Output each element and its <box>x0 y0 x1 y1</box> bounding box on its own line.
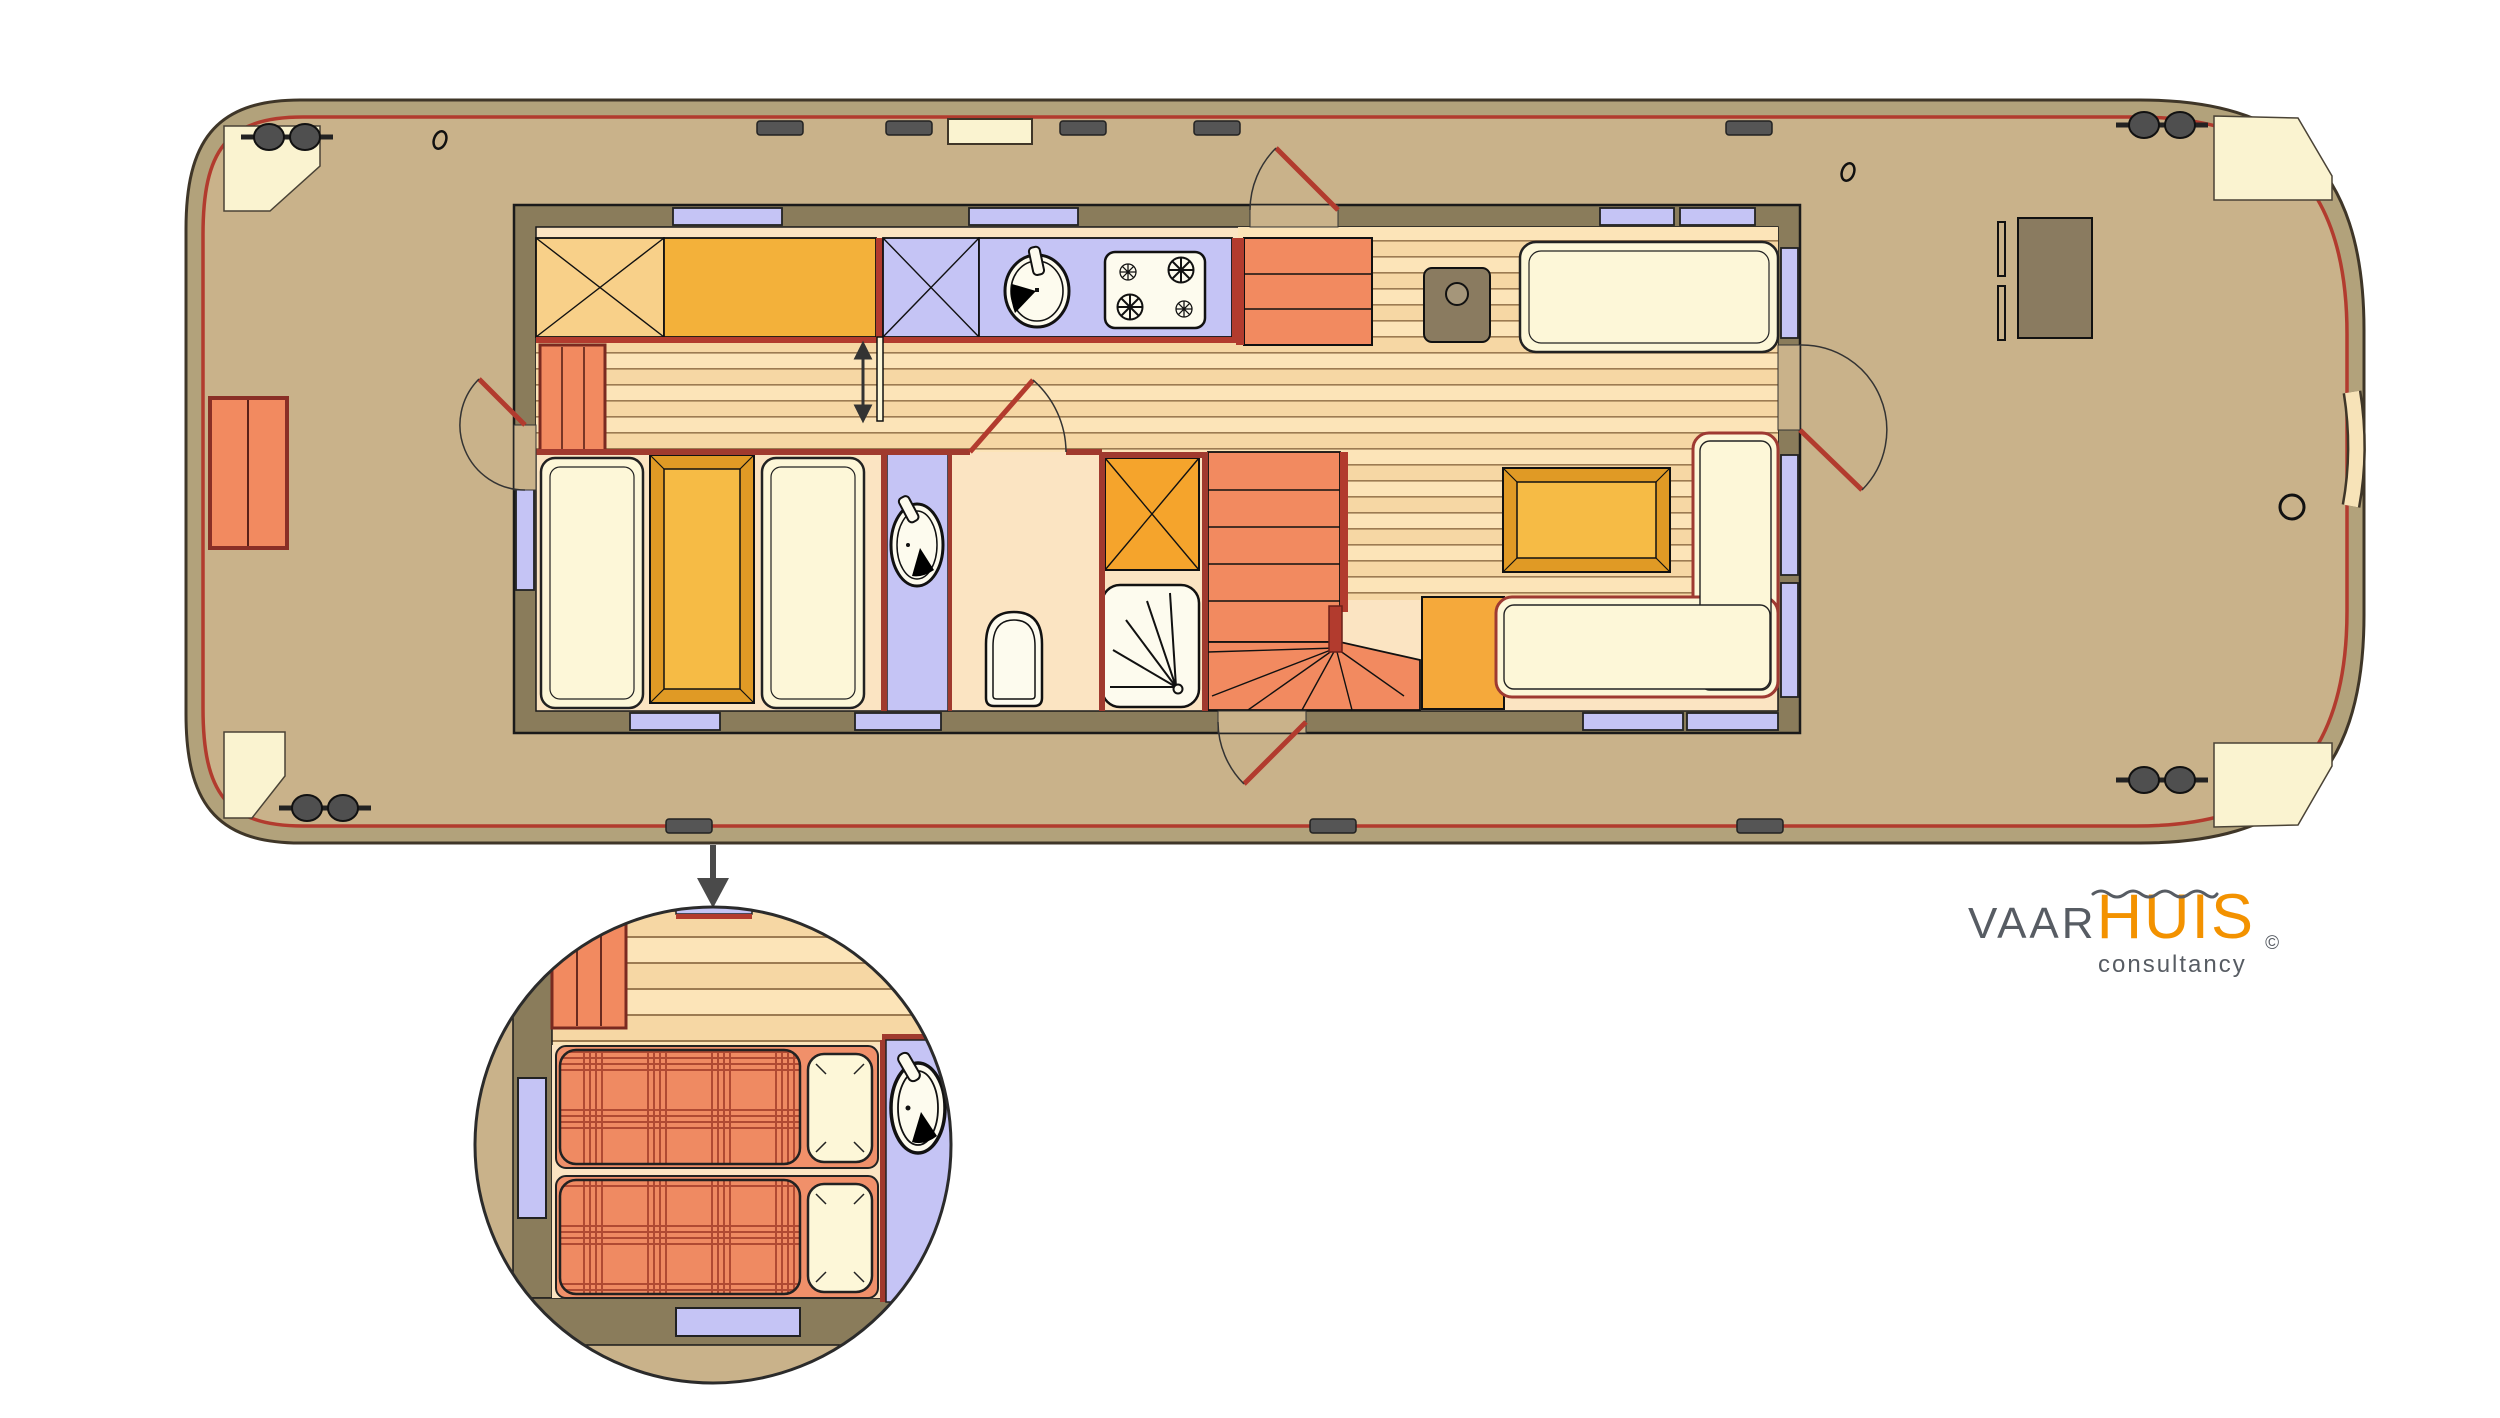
detail-circle-twin-bed-layout <box>475 901 958 1383</box>
window <box>673 208 782 225</box>
boarding-gate-top <box>948 119 1032 144</box>
sliding-hatch <box>877 337 883 421</box>
window <box>1680 208 1755 225</box>
corner-seat <box>2214 743 2332 827</box>
window <box>630 713 720 730</box>
window <box>969 208 1078 225</box>
detail-arrow <box>697 845 729 908</box>
twin-bed <box>556 1046 878 1168</box>
berth <box>762 458 864 708</box>
saloon <box>1496 242 1778 697</box>
window <box>1687 713 1778 730</box>
washbasin-vanity <box>887 452 948 711</box>
berth <box>541 458 643 708</box>
toilet-icon <box>986 612 1042 706</box>
shower-icon <box>1102 585 1199 707</box>
boarding-gate-starboard-face <box>2351 392 2356 506</box>
dinette <box>541 455 864 708</box>
corridor-plank-floor <box>536 343 1238 452</box>
twin-bed <box>556 1176 878 1298</box>
bow-storage-box <box>210 398 287 548</box>
window <box>676 1308 800 1336</box>
companionway-steps <box>1236 238 1372 345</box>
galley-counter <box>664 238 876 337</box>
window <box>1583 713 1683 730</box>
coffee-table <box>1503 468 1670 572</box>
corner-seat <box>2214 116 2332 200</box>
galley-front-trim <box>536 337 1238 343</box>
window <box>516 480 534 590</box>
window <box>855 713 941 730</box>
window <box>1781 248 1798 338</box>
logo-word-vaar: VAAR <box>1968 899 2097 949</box>
wardrobe <box>540 345 605 452</box>
logo-wave-icon <box>2091 886 2219 900</box>
floor-plan-page: VAARHUIS© consultancy <box>0 0 2500 1418</box>
copyright-symbol: © <box>2265 933 2279 955</box>
window <box>1600 208 1674 225</box>
vaarhuis-logo: VAARHUIS© consultancy <box>1968 892 2268 979</box>
window <box>1781 583 1798 697</box>
window <box>518 1078 546 1218</box>
solid-fuel-stove-icon <box>1424 268 1490 342</box>
floor-plan-drawing <box>0 0 2500 1418</box>
wardrobe <box>552 916 626 1028</box>
cabin <box>460 148 1887 784</box>
sofa-bench <box>1520 242 1778 352</box>
logo-subtitle: consultancy <box>2098 951 2268 979</box>
window <box>1781 455 1798 575</box>
stern-locker <box>1422 597 1504 709</box>
dinette-table <box>650 455 754 703</box>
stove-icon <box>1105 252 1205 328</box>
galley-divider <box>876 238 883 337</box>
